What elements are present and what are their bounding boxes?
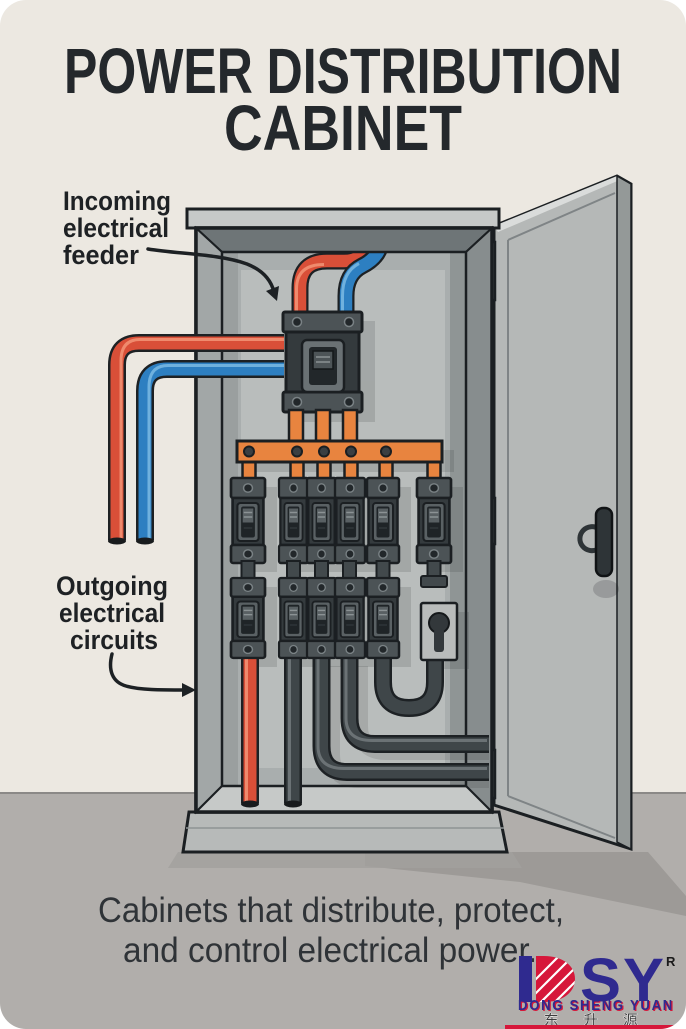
logo-letter-d-stem — [519, 956, 532, 1002]
power-cabinet-illustration: Incoming electrical feeder Outgoing elec… — [0, 0, 686, 1029]
door-handle — [596, 508, 612, 576]
busbar — [237, 441, 442, 462]
incoming-label-line3: feeder — [63, 240, 139, 270]
main-breaker — [283, 312, 362, 412]
keyhole-lock-panel — [421, 603, 457, 660]
cabinet-door — [494, 176, 631, 849]
poster-background: Incoming electrical feeder Outgoing elec… — [0, 0, 686, 1029]
cabinet-floor-shadow — [168, 852, 522, 868]
outgoing-label-line2: electrical — [59, 598, 165, 628]
cabinet-inner-floor — [196, 786, 492, 812]
cabinet-top-cap — [187, 209, 499, 228]
incoming-label-line2: electrical — [63, 213, 169, 243]
breaker-row-2 — [231, 578, 399, 658]
outgoing-label-line1: Outgoing — [56, 571, 168, 601]
poster-title-line2: CABINET — [224, 92, 462, 164]
handle-shadow — [593, 580, 619, 598]
poster-caption-line2: and control electrical power. — [123, 931, 537, 970]
breaker-row-1 — [231, 478, 451, 563]
outgoing-label-line3: circuits — [70, 625, 158, 655]
door-edge — [617, 176, 631, 849]
incoming-label-line1: Incoming — [63, 186, 171, 216]
logo-red-rule — [505, 1025, 686, 1029]
poster-card: Incoming electrical feeder Outgoing elec… — [0, 0, 686, 1029]
logo-registered-mark: R — [666, 954, 676, 969]
poster-caption-line1: Cabinets that distribute, protect, — [98, 891, 564, 930]
cabinet-base — [183, 812, 507, 852]
